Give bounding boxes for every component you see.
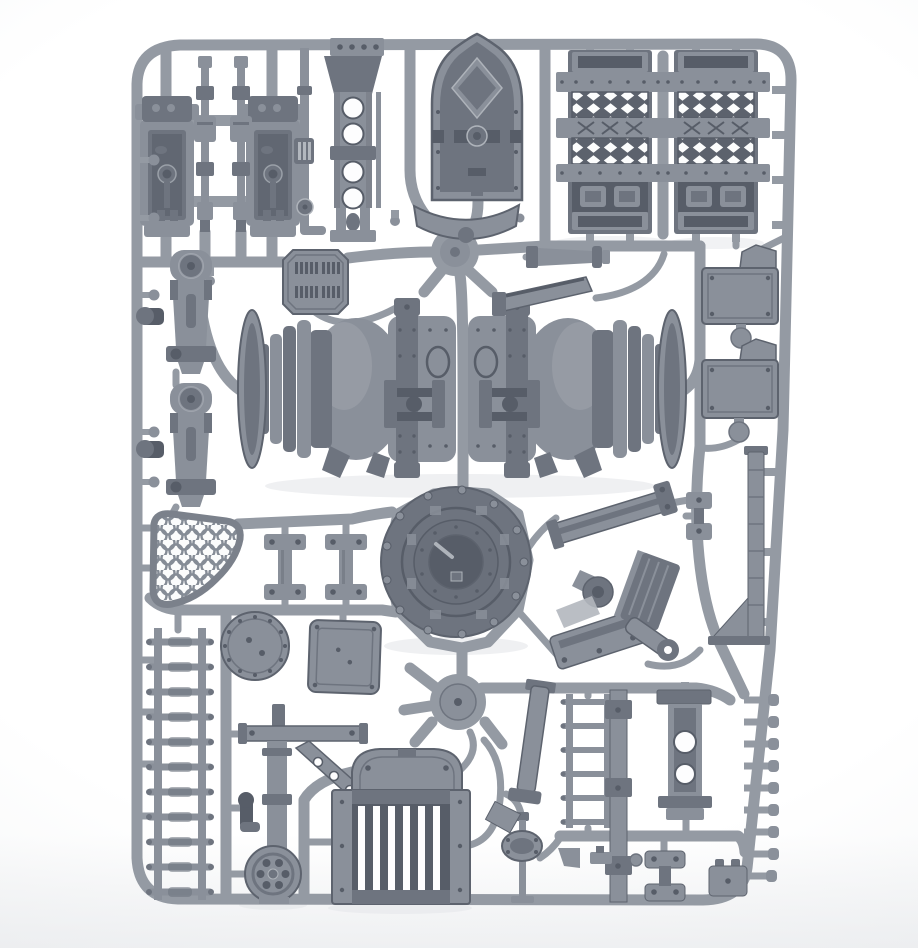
photo-stage <box>0 0 918 948</box>
stud-box <box>709 859 747 896</box>
yoke-bracket <box>414 205 519 243</box>
ladder-long <box>146 628 214 900</box>
double-plate-clamp <box>645 851 685 901</box>
mesh-walkway-panel-1 <box>556 42 664 242</box>
turbine-dome-hatch <box>381 486 531 638</box>
mesh-walkway-panel-2 <box>662 42 770 242</box>
equipment-box-2 <box>702 339 778 442</box>
gothic-door <box>432 34 522 200</box>
square-access-hatch <box>308 620 381 694</box>
thin-pipe-with-valve <box>294 48 326 235</box>
support-arm <box>492 277 592 316</box>
servo-turret-assembly <box>549 550 681 670</box>
plasma-tank-half-right <box>468 298 686 478</box>
drilled-channel-bracket <box>657 682 712 820</box>
equipment-box-1 <box>702 245 778 348</box>
moulding-peg-strip <box>742 694 779 882</box>
pipe-hanger-bracket-2 <box>136 383 216 507</box>
lower-hub <box>430 674 486 730</box>
scale-mesh-shield <box>153 514 240 605</box>
beam-clamp-1 <box>264 528 306 606</box>
louvred-grille <box>332 749 470 904</box>
beam-clamp-2 <box>325 528 367 606</box>
segmented-pipe-1 <box>194 56 216 232</box>
round-access-hatch <box>221 612 289 680</box>
pipe-hanger-bracket-1 <box>136 250 216 374</box>
support-column <box>324 38 384 242</box>
sprue-photo <box>0 0 918 948</box>
octagon-vent-plate <box>283 250 348 314</box>
plasma-tank-half-left <box>238 298 456 478</box>
